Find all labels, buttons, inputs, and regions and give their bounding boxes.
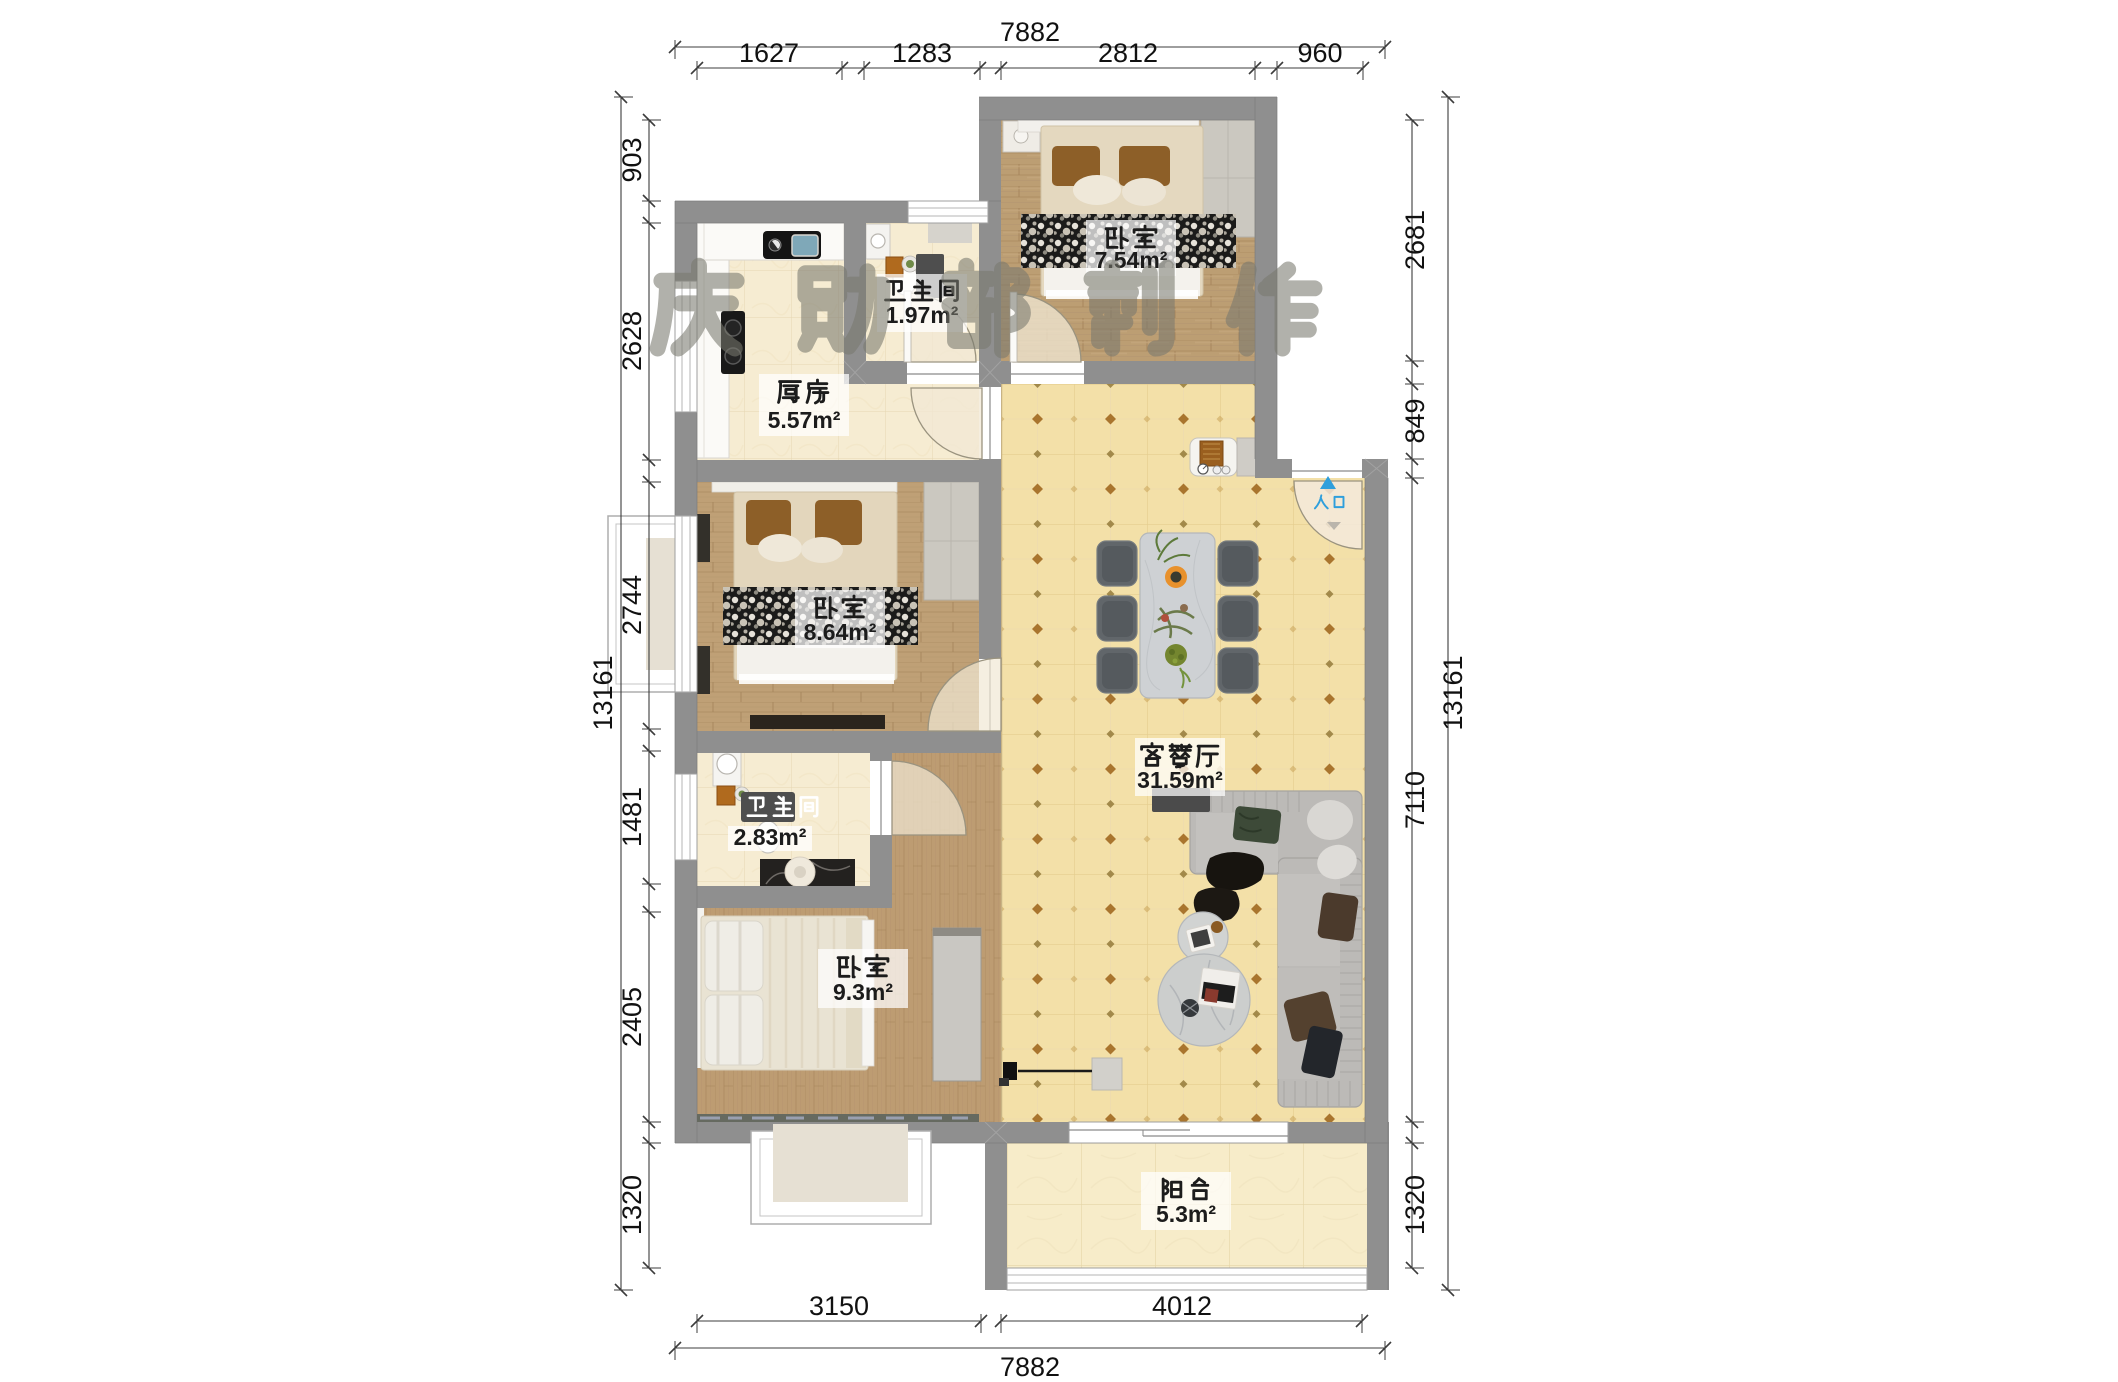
svg-text:5.57m²: 5.57m² [768, 407, 841, 433]
svg-text:2744: 2744 [617, 575, 647, 635]
svg-text:7110: 7110 [1400, 771, 1430, 829]
svg-text:1481: 1481 [617, 787, 647, 847]
svg-text:3150: 3150 [809, 1291, 869, 1321]
svg-text:2681: 2681 [1400, 210, 1430, 270]
svg-text:5.3m²: 5.3m² [1156, 1201, 1216, 1227]
svg-text:2405: 2405 [617, 987, 647, 1047]
svg-text:13161: 13161 [1438, 655, 1468, 730]
svg-text:2.83m²: 2.83m² [734, 824, 807, 850]
svg-text:1320: 1320 [1400, 1175, 1430, 1235]
svg-text:903: 903 [617, 137, 647, 182]
svg-text:1627: 1627 [739, 38, 799, 68]
svg-text:7882: 7882 [1000, 17, 1060, 47]
svg-text:7882: 7882 [1000, 1352, 1060, 1382]
svg-text:2628: 2628 [617, 311, 647, 371]
svg-text:8.64m²: 8.64m² [804, 619, 877, 645]
svg-text:1283: 1283 [892, 38, 952, 68]
svg-text:9.3m²: 9.3m² [833, 979, 893, 1005]
svg-text:1320: 1320 [617, 1175, 647, 1235]
svg-text:31.59m²: 31.59m² [1137, 767, 1223, 793]
svg-text:960: 960 [1297, 38, 1342, 68]
svg-text:849: 849 [1400, 398, 1430, 443]
svg-text:2812: 2812 [1098, 38, 1158, 68]
svg-text:4012: 4012 [1152, 1291, 1212, 1321]
svg-text:13161: 13161 [588, 655, 618, 730]
